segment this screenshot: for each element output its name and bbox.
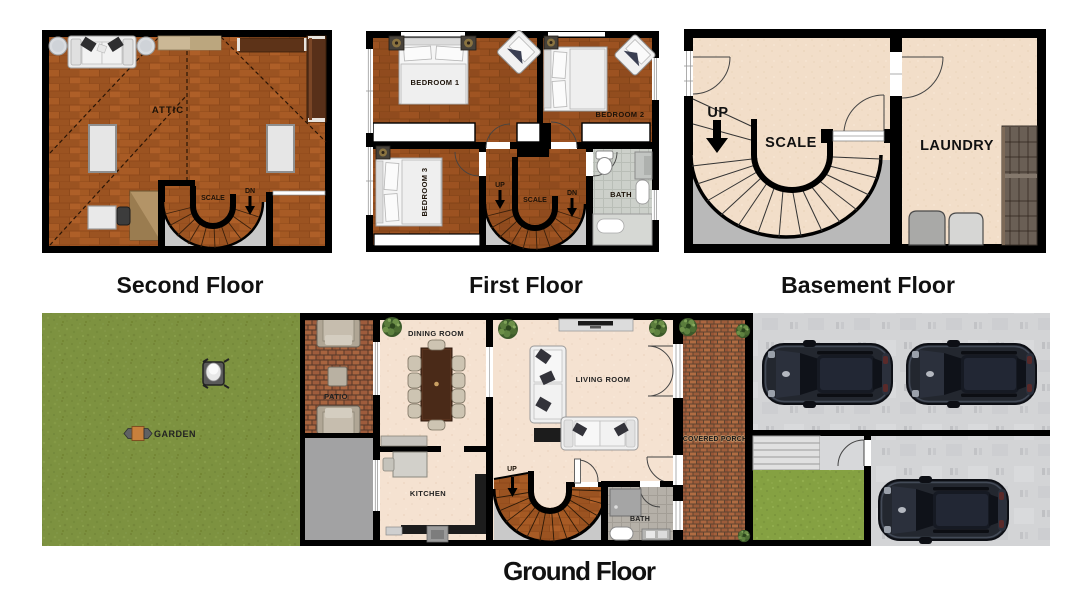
- svg-text:BEDROOM 3: BEDROOM 3: [420, 167, 429, 216]
- svg-text:LAUNDRY: LAUNDRY: [920, 138, 994, 154]
- svg-text:BEDROOM 2: BEDROOM 2: [595, 110, 644, 119]
- svg-text:KITCHEN: KITCHEN: [410, 489, 446, 498]
- svg-text:UP: UP: [707, 105, 728, 121]
- svg-text:GARDEN: GARDEN: [154, 429, 196, 439]
- svg-text:DN: DN: [567, 190, 577, 197]
- svg-text:SCALE: SCALE: [765, 135, 817, 151]
- svg-text:BEDROOM 1: BEDROOM 1: [410, 78, 459, 87]
- svg-text:BATH: BATH: [610, 190, 632, 199]
- svg-text:LIVING ROOM: LIVING ROOM: [576, 375, 631, 384]
- svg-text:DINING ROOM: DINING ROOM: [408, 329, 464, 338]
- svg-text:BATH: BATH: [630, 516, 650, 523]
- svg-text:UP: UP: [507, 466, 517, 473]
- svg-text:DN: DN: [245, 188, 255, 195]
- svg-text:UP: UP: [495, 182, 505, 189]
- svg-text:SCALE: SCALE: [523, 197, 547, 204]
- svg-text:COVERED PORCH: COVERED PORCH: [683, 436, 747, 443]
- svg-text:SCALE: SCALE: [201, 195, 225, 202]
- svg-text:ATTIC: ATTIC: [152, 105, 184, 116]
- svg-text:PATIO: PATIO: [324, 392, 348, 401]
